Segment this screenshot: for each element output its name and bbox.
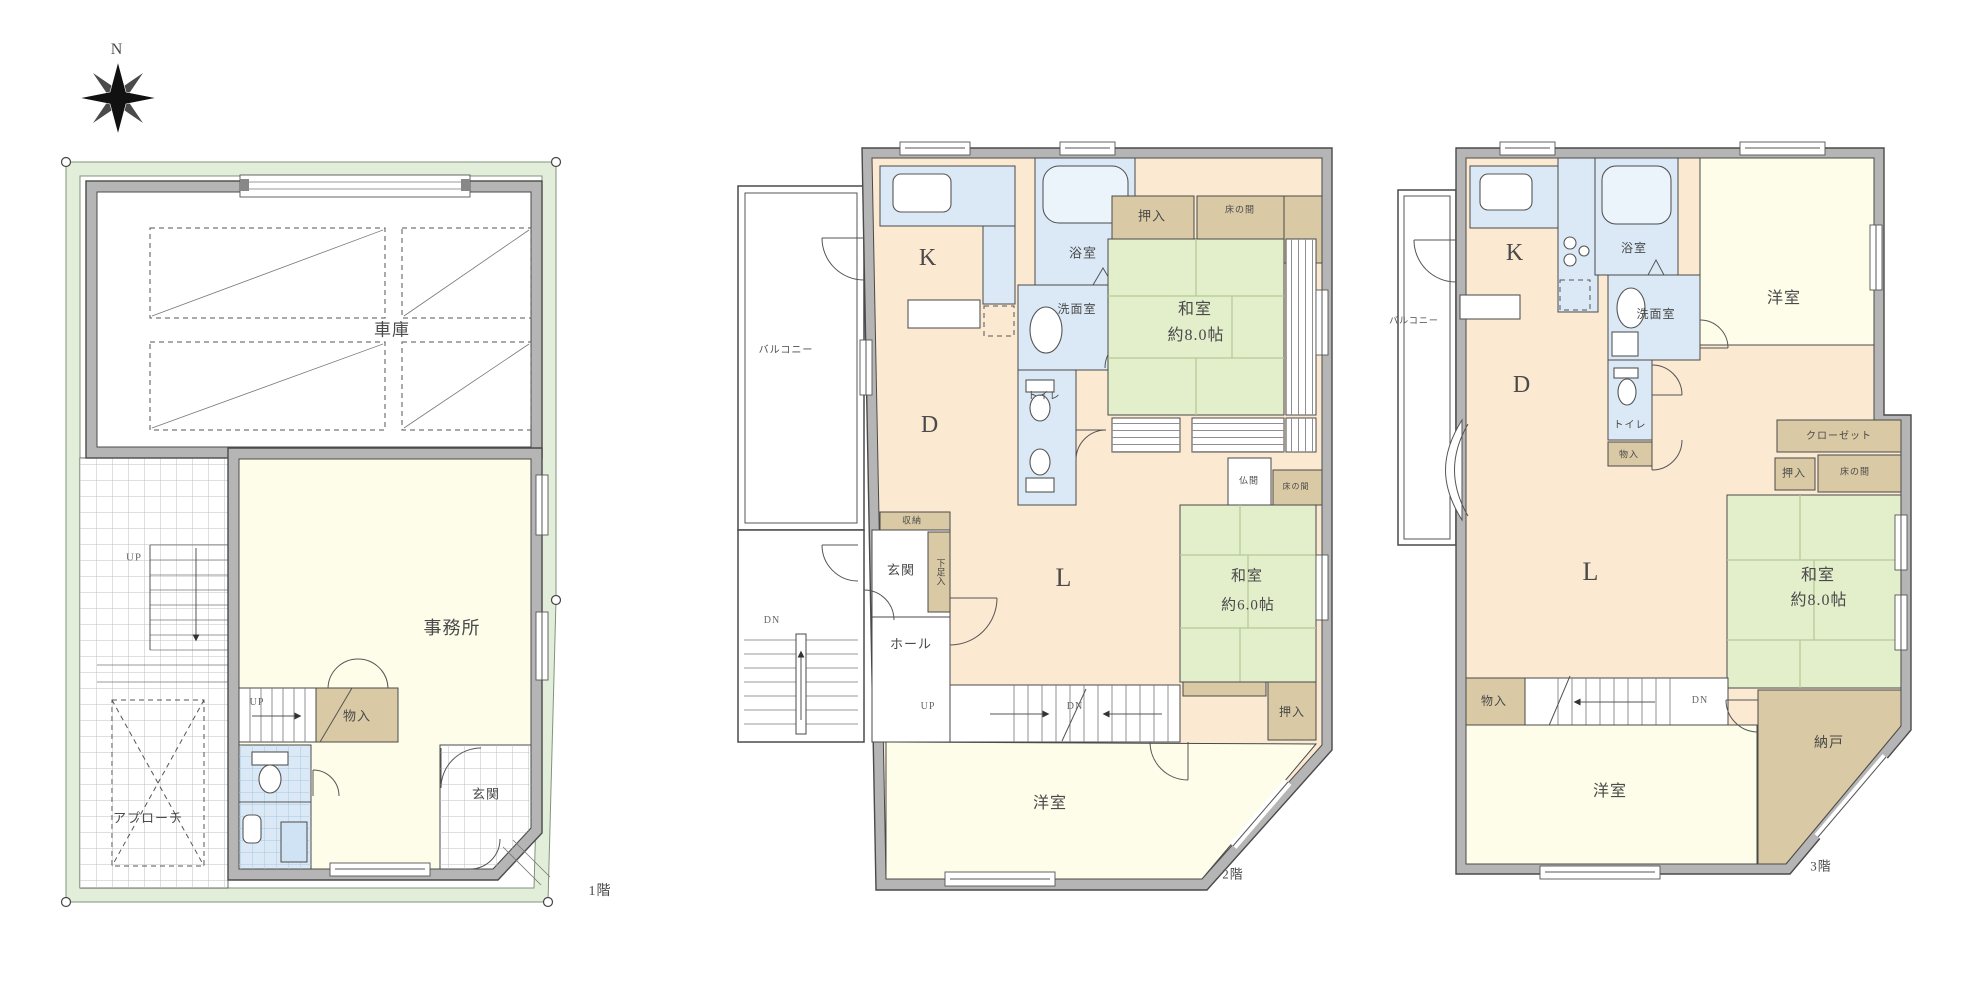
f2-hall-room: [872, 617, 950, 742]
bathtub-icon: [1602, 166, 1671, 224]
f1-indoor-stairs: [239, 688, 316, 742]
toilet-bowl-icon: [259, 765, 281, 793]
compass-rose-icon: [80, 62, 156, 134]
f3-indoor-stairs: [1525, 676, 1728, 728]
f2-tokonoma-top-room: [1197, 196, 1284, 239]
sink-icon: [281, 822, 307, 862]
floorplan-drawing: [0, 0, 1961, 984]
urinal-icon: [243, 815, 261, 843]
toilet-bowl-icon: [1030, 395, 1050, 421]
floor2-plan: [738, 142, 1332, 890]
f2-oshiire-btm-room: [1268, 682, 1316, 740]
f3-yoshitsu-btm-room: [1466, 725, 1757, 864]
washbasin-icon: [1617, 288, 1645, 328]
floor3-plan: [1398, 142, 1911, 879]
f3-monoire-small-room: [1608, 442, 1652, 466]
floorplan-canvas: N車庫事務所UPUP物入アプローチ玄関1階バルコニーDNK浴室洗面室トイレ押入床…: [0, 0, 1961, 984]
f1-approach-area: [80, 458, 228, 888]
engawa-strip: [1286, 239, 1316, 415]
f3-yoshitsu-top-room: [1700, 158, 1874, 348]
f2-outdoor-stairs: [738, 530, 864, 742]
f2-yoshitsu-room: [886, 742, 1316, 879]
f3-washroom-area: [1608, 275, 1700, 360]
f1-garage: [86, 175, 542, 458]
kitchen-sink-icon: [893, 174, 951, 212]
f1-office-block: [228, 448, 550, 885]
toilet-tank-icon: [252, 752, 288, 765]
f3-balcony-area: [1398, 190, 1456, 545]
f3-closet-room: [1777, 420, 1901, 452]
f3-bathroom: [1595, 158, 1678, 275]
f2-getabako-room: [928, 532, 950, 612]
f3-monoire-room: [1466, 678, 1525, 725]
washbasin-icon: [1030, 307, 1062, 353]
f1-garage-door: [240, 175, 470, 197]
f2-shuno-room: [880, 512, 950, 530]
f2-butsuma-room: [1228, 458, 1271, 505]
toilet-bowl-icon: [1030, 449, 1050, 475]
f3-tokonoma-room: [1818, 455, 1901, 492]
f3-oshiire-room: [1775, 458, 1815, 490]
f2-indoor-stairs: [950, 685, 1180, 742]
f2-oshiire-top-room: [1112, 196, 1194, 239]
f2-washitsu8-area: [1108, 196, 1322, 452]
floor1-plan: [62, 158, 561, 907]
toilet-bowl-icon: [1618, 379, 1636, 405]
f2-tokonoma-mid-room: [1273, 470, 1322, 505]
kitchen-sink-icon: [1480, 174, 1532, 210]
